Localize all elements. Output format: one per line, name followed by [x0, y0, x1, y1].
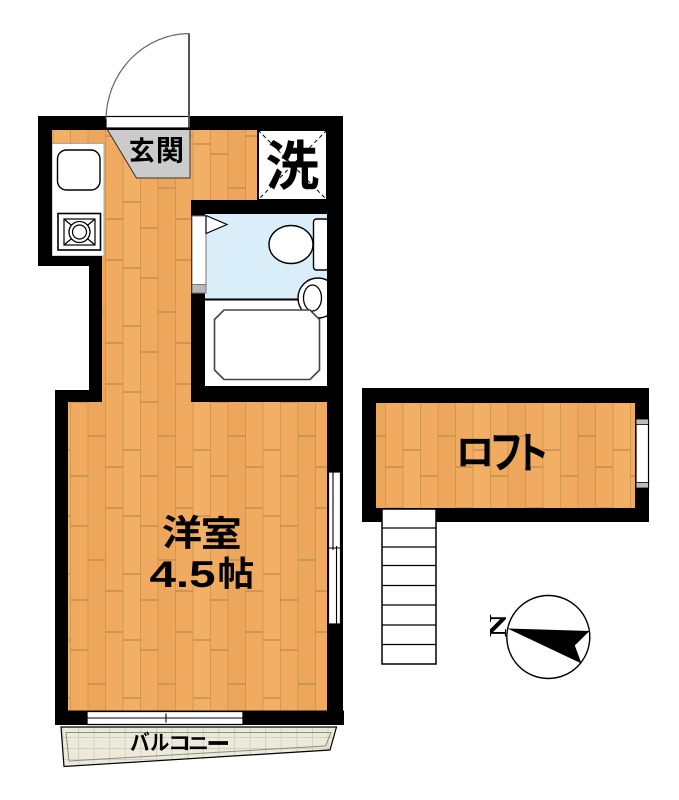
svg-text:4.5: 4.5 [150, 554, 216, 596]
